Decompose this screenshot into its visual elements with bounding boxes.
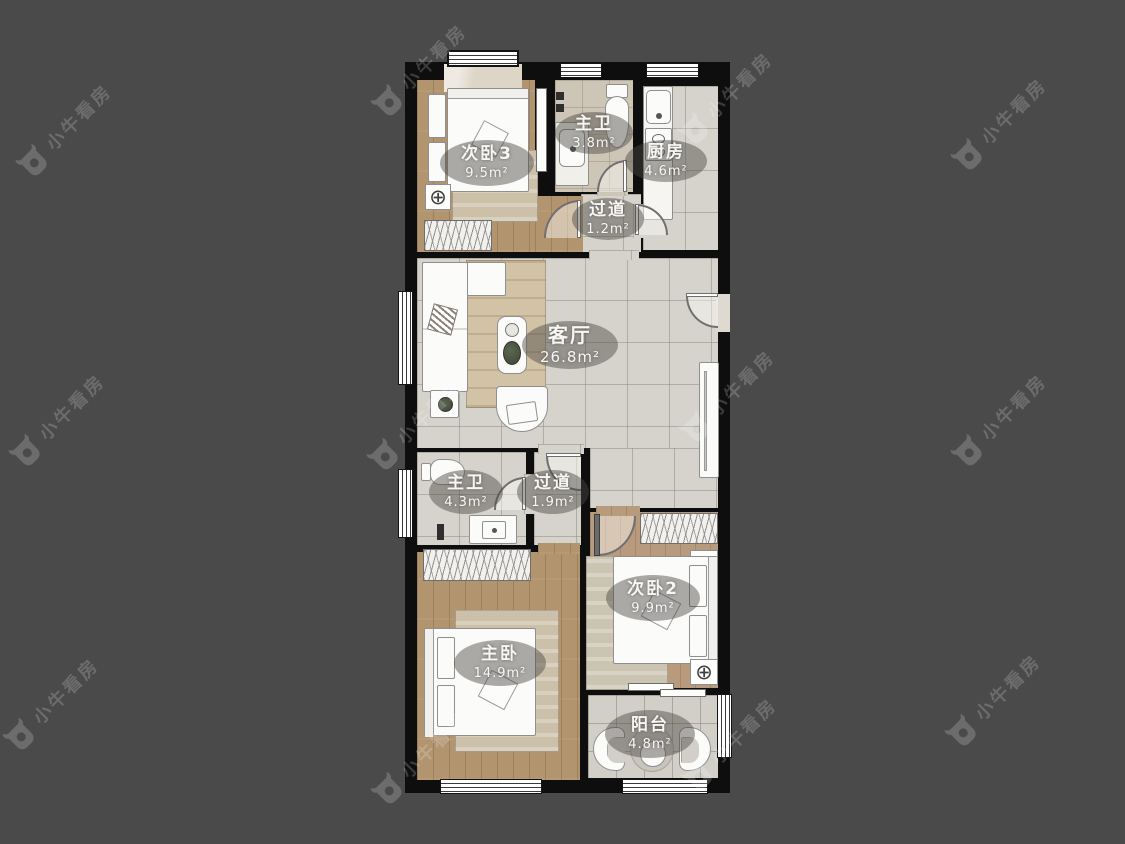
- shoe-cabinet: [699, 362, 719, 478]
- bay-window: [447, 50, 519, 67]
- sink: [482, 521, 506, 539]
- room-area: 9.5m²: [465, 166, 509, 181]
- vanity: [469, 515, 517, 544]
- bull-logo-icon: [11, 139, 56, 184]
- room-area: 9.9m²: [631, 601, 675, 616]
- room-label-balcony: 阳台 4.8m²: [605, 710, 695, 758]
- room-area: 3.8m²: [572, 136, 616, 151]
- kitchen-sink: [646, 90, 671, 124]
- room-label-bath-top: 主卫 3.8m²: [555, 112, 633, 154]
- room-name: 主卫: [447, 474, 485, 494]
- bull-logo-icon: [4, 429, 49, 474]
- cabinet-line: [704, 371, 707, 471]
- room-name: 次卧3: [461, 145, 513, 165]
- room-name: 主卧: [481, 645, 519, 665]
- headboard: [425, 629, 434, 737]
- floor-plan-canvas: ⊕: [0, 0, 1125, 844]
- watermark-text: 小牛看房: [969, 648, 1047, 726]
- room-label-bedroom2: 次卧2 9.9m²: [606, 575, 700, 621]
- room-label-hallway-top: 过道 1.2m²: [572, 198, 644, 240]
- room-area: 1.2m²: [586, 222, 630, 237]
- wardrobe: [424, 220, 492, 251]
- shower-fixture: [556, 92, 564, 100]
- watermark: 小牛看房: [11, 76, 120, 185]
- room-name: 次卧2: [627, 580, 679, 600]
- window-kitchen: [646, 63, 699, 78]
- room-area: 26.8m²: [540, 348, 600, 366]
- room-name: 客厅: [548, 324, 592, 347]
- room-area: 14.9m²: [474, 666, 527, 681]
- window-bath-mid-left: [398, 469, 413, 538]
- window-bath-top: [560, 63, 602, 78]
- pillow: [437, 637, 455, 679]
- opening-master: [538, 543, 580, 554]
- plant: [503, 341, 521, 365]
- room-label-living: 客厅 26.8m²: [522, 321, 618, 369]
- room-name: 过道: [589, 201, 627, 221]
- bull-logo-icon: [0, 713, 43, 758]
- entry-door-leaf: [686, 293, 718, 297]
- watermark-text: 小牛看房: [975, 72, 1053, 150]
- watermark-text: 小牛看房: [33, 368, 111, 446]
- floor-drain: [437, 524, 444, 540]
- door-leaf: [594, 514, 600, 556]
- bull-logo-icon: [946, 429, 991, 474]
- wardrobe: [423, 549, 531, 581]
- decor-bowl: [505, 323, 519, 337]
- room-name: 主卫: [575, 115, 613, 135]
- watermark: 小牛看房: [946, 70, 1055, 179]
- ac-glyph: ⊕: [429, 187, 447, 208]
- watermark: 小牛看房: [0, 650, 106, 759]
- room-name: 过道: [534, 474, 572, 494]
- side-table: [430, 390, 459, 418]
- watermark: 小牛看房: [4, 366, 113, 475]
- room-label-hallway-mid: 过道 1.9m²: [517, 470, 589, 514]
- open-door-leaf: [536, 88, 547, 172]
- room-area: 4.3m²: [444, 495, 488, 510]
- ac-glyph: ⊕: [695, 662, 713, 683]
- room-name: 阳台: [631, 716, 669, 736]
- watermark-text: 小牛看房: [40, 78, 118, 156]
- door-leaf: [546, 453, 581, 457]
- headboard: [708, 557, 717, 665]
- opening-entry: [716, 294, 730, 332]
- ac-unit-icon: ⊕: [690, 659, 718, 685]
- armchair-pillow: [506, 401, 538, 425]
- window-balcony-bottom: [622, 779, 708, 794]
- window-master-bottom: [440, 779, 542, 794]
- headboard: [448, 89, 528, 99]
- room-label-bath-mid: 主卫 4.3m²: [429, 470, 503, 514]
- watermark: 小牛看房: [946, 366, 1055, 475]
- room-area: 4.6m²: [644, 164, 688, 179]
- nightstand: [428, 94, 446, 138]
- watermark-text: 小牛看房: [975, 368, 1053, 446]
- opening-hall-living: [589, 250, 639, 260]
- drain: [656, 113, 662, 119]
- room-label-master: 主卧 14.9m²: [454, 640, 546, 686]
- plant: [438, 397, 453, 412]
- room-name: 厨房: [647, 143, 685, 163]
- pillow: [689, 615, 707, 657]
- bull-logo-icon: [946, 133, 991, 178]
- room-label-kitchen: 厨房 4.6m²: [625, 140, 707, 182]
- room-area: 4.8m²: [628, 737, 672, 752]
- room-area: 1.9m²: [531, 495, 575, 510]
- bull-logo-icon: [940, 709, 985, 754]
- sliding-door-panel: [660, 689, 706, 697]
- wardrobe: [640, 513, 718, 544]
- pillow: [437, 685, 455, 727]
- window-balcony-right: [717, 694, 732, 758]
- room-label-bedroom3: 次卧3 9.5m²: [440, 140, 534, 186]
- watermark-text: 小牛看房: [27, 652, 105, 730]
- watermark: 小牛看房: [940, 646, 1049, 755]
- opening-bedroom2: [596, 506, 640, 516]
- ac-unit-icon: ⊕: [425, 184, 451, 210]
- window-living-left: [398, 291, 413, 385]
- shower-fixture: [556, 104, 564, 112]
- drain: [492, 528, 497, 533]
